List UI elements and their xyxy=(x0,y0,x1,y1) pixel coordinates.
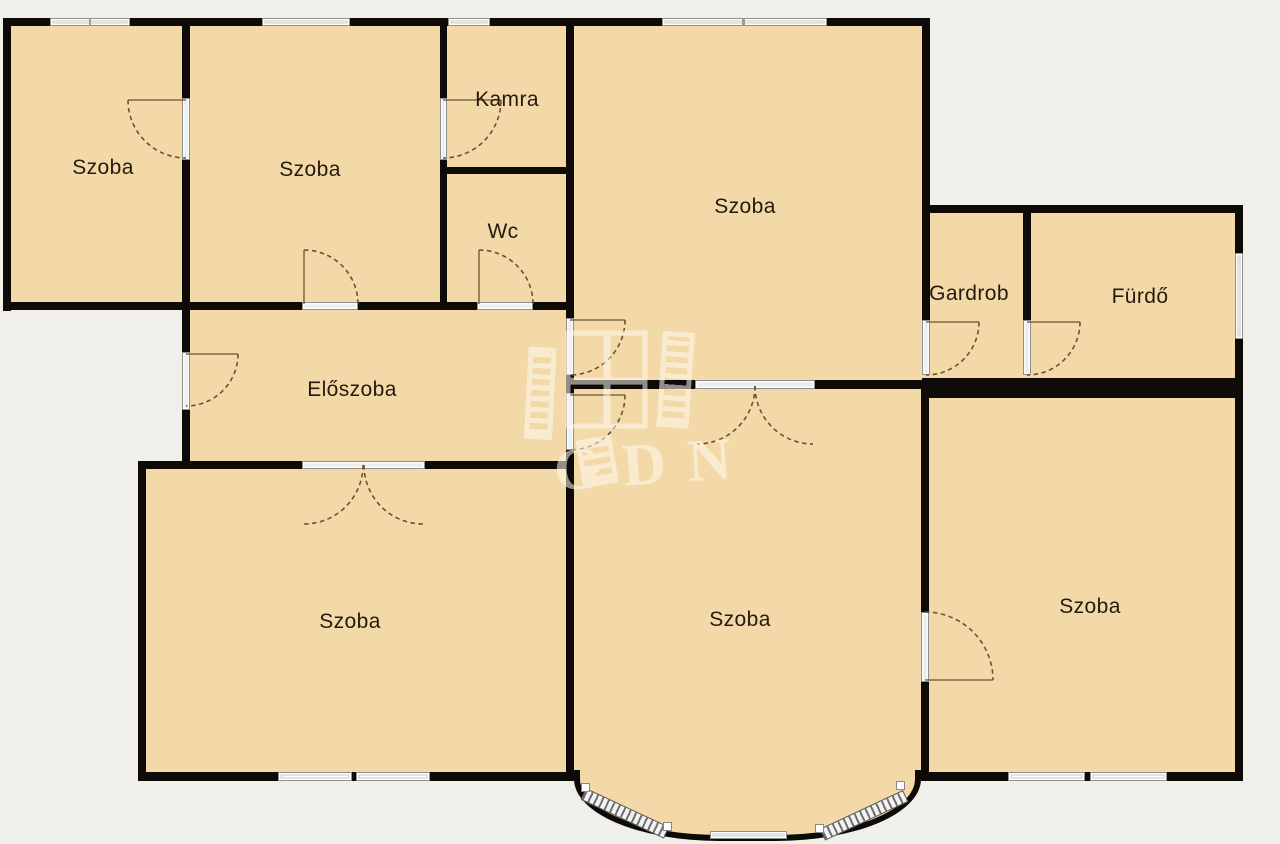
window-icon xyxy=(1235,253,1243,339)
wall xyxy=(440,26,447,98)
room-label-wc: Wc xyxy=(487,220,518,244)
door-frame-icon xyxy=(1023,320,1031,375)
wall xyxy=(1235,337,1243,781)
watermark: GDN xyxy=(514,314,776,516)
door-frame-icon xyxy=(182,352,190,410)
window-icon xyxy=(356,772,430,781)
watermark-text: GDN xyxy=(542,423,756,506)
window-mullion-icon xyxy=(89,18,91,26)
bay-hatch-cap xyxy=(663,822,672,831)
door-frame-icon xyxy=(477,302,533,310)
watermark-window-icon xyxy=(524,347,557,440)
door-frame-icon xyxy=(922,320,930,375)
room-label-eloszoba: Előszoba xyxy=(307,378,397,402)
window-icon xyxy=(1008,772,1085,781)
room-label-kamra: Kamra xyxy=(475,88,539,112)
bay-hatch-cap xyxy=(581,783,590,792)
door-frame-icon xyxy=(302,461,425,469)
room-label-szoba-bottom-left: Szoba xyxy=(319,610,381,634)
wall xyxy=(921,389,929,612)
window-icon xyxy=(278,772,352,781)
window-icon xyxy=(448,18,490,26)
window-icon xyxy=(710,831,787,839)
room-label-gardrob: Gardrob xyxy=(929,282,1009,306)
wall xyxy=(815,380,922,389)
window-icon xyxy=(262,18,350,26)
window-icon xyxy=(1090,772,1167,781)
wall xyxy=(1235,205,1243,255)
wall xyxy=(182,26,190,98)
wall xyxy=(922,26,930,320)
wall xyxy=(182,410,190,469)
bay-hatch-cap xyxy=(896,781,905,790)
door-frame-icon xyxy=(182,98,190,160)
door-frame-icon xyxy=(302,302,358,310)
room-label-szoba-top-middle: Szoba xyxy=(279,158,341,182)
wall xyxy=(358,302,477,310)
room-label-szoba-bottom-middle: Szoba xyxy=(709,608,771,632)
wall xyxy=(182,302,190,352)
wall xyxy=(921,682,929,781)
wall xyxy=(566,18,574,318)
wall xyxy=(922,378,1243,398)
wall xyxy=(440,160,447,302)
watermark-window-icon xyxy=(656,331,695,429)
wall xyxy=(922,205,1243,213)
door-frame-icon xyxy=(440,98,447,160)
room-label-furdo: Fürdő xyxy=(1112,285,1169,309)
floorplan: GDN Szoba Szoba Kamra Wc Szoba Gardrob F… xyxy=(0,0,1280,844)
wall xyxy=(3,302,302,310)
door-frame-icon xyxy=(921,612,929,682)
wall xyxy=(138,461,302,469)
room-label-szoba-top-left: Szoba xyxy=(72,156,134,180)
room-label-szoba-top-right: Szoba xyxy=(714,195,776,219)
window-mullion-icon xyxy=(742,18,745,26)
wall xyxy=(3,18,11,311)
watermark-window-bar xyxy=(570,378,642,385)
bay-hatch-cap xyxy=(815,824,824,833)
wall xyxy=(443,167,574,174)
wall xyxy=(138,461,146,781)
room-label-szoba-bottom-right: Szoba xyxy=(1059,595,1121,619)
room-floor xyxy=(921,378,1243,781)
watermark-window-icon xyxy=(565,331,647,429)
wall xyxy=(1023,213,1031,320)
wall xyxy=(182,160,190,302)
